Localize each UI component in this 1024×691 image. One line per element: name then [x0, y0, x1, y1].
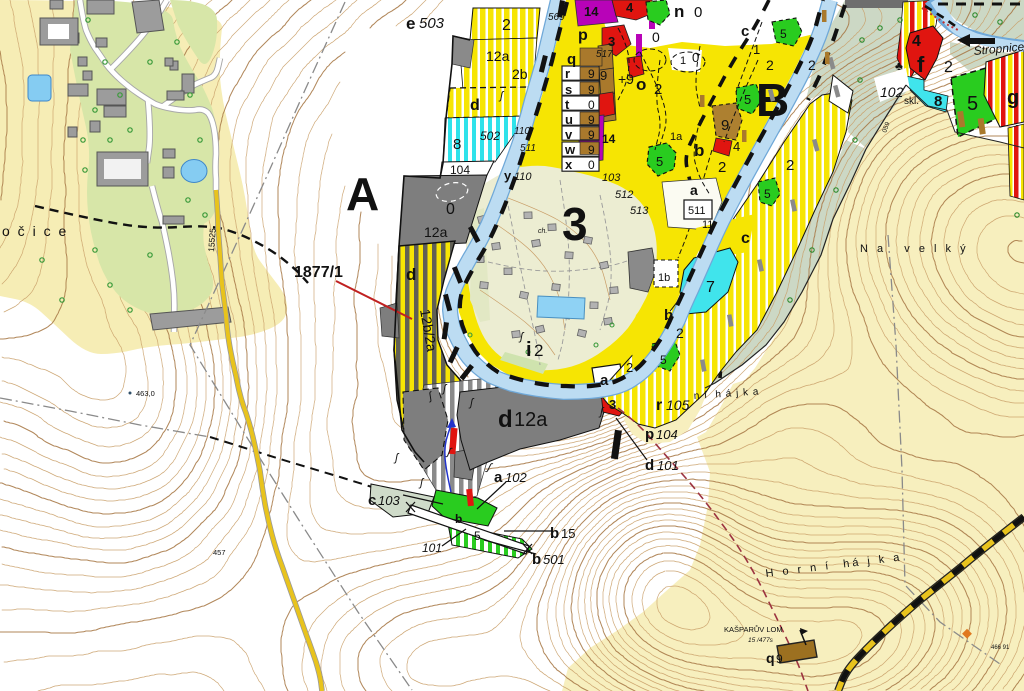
- svg-text:♣: ♣: [895, 59, 903, 73]
- svg-text:2: 2: [766, 57, 774, 73]
- svg-text:103: 103: [602, 172, 621, 184]
- svg-text:3: 3: [562, 198, 588, 250]
- svg-text:ch.: ch.: [538, 228, 547, 235]
- svg-text:x: x: [565, 157, 573, 172]
- svg-text:3: 3: [609, 397, 616, 412]
- svg-text:n: n: [674, 2, 684, 21]
- svg-text:2: 2: [718, 159, 726, 176]
- svg-text:t: t: [565, 97, 570, 112]
- svg-text:14: 14: [602, 132, 616, 146]
- svg-text:b: b: [694, 141, 704, 160]
- svg-text:f: f: [917, 52, 925, 77]
- svg-text:c: c: [741, 23, 749, 40]
- svg-text:502: 502: [480, 129, 500, 143]
- svg-text:102: 102: [880, 84, 904, 100]
- svg-text:b: b: [550, 525, 559, 542]
- svg-text:517: 517: [596, 49, 613, 60]
- svg-text:d: d: [498, 406, 513, 433]
- svg-text:d: d: [470, 97, 480, 114]
- svg-text:a: a: [690, 182, 698, 198]
- svg-text:0: 0: [692, 50, 699, 65]
- svg-text:2: 2: [534, 341, 543, 360]
- svg-text:a: a: [600, 372, 609, 389]
- svg-text:a: a: [494, 469, 503, 486]
- svg-text:3: 3: [608, 34, 615, 49]
- svg-text:skl.: skl.: [904, 96, 919, 107]
- svg-text:15 /477s: 15 /477s: [748, 637, 774, 644]
- svg-text:101: 101: [422, 541, 442, 555]
- svg-text:104: 104: [450, 163, 470, 177]
- svg-text:0: 0: [588, 98, 595, 112]
- svg-text:9: 9: [776, 652, 783, 666]
- svg-text:501: 501: [543, 552, 565, 567]
- svg-text:0: 0: [588, 158, 595, 172]
- svg-text:12a: 12a: [486, 48, 510, 64]
- svg-text:+9: +9: [618, 71, 634, 87]
- svg-text:o: o: [636, 75, 646, 94]
- svg-text:5: 5: [656, 154, 663, 169]
- svg-text:8: 8: [453, 136, 461, 153]
- svg-text:0: 0: [694, 4, 702, 21]
- svg-text:p: p: [645, 426, 654, 443]
- svg-text:b: b: [532, 551, 541, 568]
- svg-text:A: A: [346, 168, 379, 220]
- svg-text:5: 5: [474, 529, 481, 543]
- svg-text:r: r: [565, 66, 570, 81]
- svg-text:b: b: [455, 512, 462, 526]
- svg-text:9: 9: [588, 128, 595, 142]
- svg-text:r: r: [656, 397, 662, 414]
- svg-text:5: 5: [660, 353, 667, 367]
- svg-text:q: q: [567, 51, 576, 68]
- svg-text:463,0: 463,0: [136, 389, 155, 398]
- svg-text:2b: 2b: [512, 66, 528, 82]
- svg-text:2: 2: [786, 157, 794, 174]
- svg-text:15: 15: [561, 526, 575, 541]
- svg-text:105: 105: [666, 397, 690, 413]
- svg-text:4: 4: [912, 33, 921, 50]
- svg-text:14: 14: [584, 4, 599, 19]
- svg-text:12a: 12a: [514, 409, 548, 431]
- svg-text:9: 9: [600, 68, 607, 83]
- svg-text:1: 1: [753, 42, 760, 57]
- svg-text:513: 513: [630, 205, 649, 217]
- svg-text:102: 102: [505, 470, 527, 485]
- svg-text:0: 0: [446, 201, 455, 218]
- svg-text:2: 2: [808, 57, 816, 73]
- svg-text:9: 9: [588, 143, 595, 157]
- svg-text:11: 11: [702, 219, 713, 231]
- svg-text:2: 2: [654, 81, 662, 98]
- svg-text:w: w: [564, 142, 576, 157]
- svg-text:2: 2: [502, 17, 511, 34]
- svg-text:y: y: [504, 168, 512, 183]
- svg-text:5: 5: [764, 187, 771, 201]
- svg-text:5: 5: [780, 27, 787, 41]
- svg-text:d: d: [645, 457, 654, 474]
- svg-text:q: q: [766, 650, 775, 666]
- svg-text:110: 110: [514, 171, 532, 183]
- svg-text:N a v e l k ý: N a v e l k ý: [860, 243, 969, 255]
- svg-text:KAŠPARŮV LOM: KAŠPARŮV LOM: [724, 625, 783, 634]
- svg-text:5: 5: [967, 93, 978, 115]
- svg-text:d: d: [406, 265, 416, 284]
- svg-text:0: 0: [652, 29, 660, 45]
- svg-text:511: 511: [520, 143, 536, 154]
- svg-text:101: 101: [657, 458, 679, 473]
- svg-text:12a: 12a: [424, 224, 448, 240]
- svg-text:9: 9: [588, 113, 595, 127]
- svg-text:1: 1: [680, 55, 686, 67]
- svg-text:4: 4: [733, 139, 740, 154]
- svg-text:v: v: [565, 127, 573, 142]
- svg-text:i: i: [526, 339, 532, 361]
- svg-text:2: 2: [944, 59, 953, 76]
- svg-text:512: 512: [615, 189, 633, 201]
- svg-text:9: 9: [721, 117, 729, 134]
- svg-text:s: s: [565, 82, 572, 97]
- svg-text:g: g: [1007, 87, 1019, 109]
- svg-text:104: 104: [656, 427, 678, 442]
- svg-text:1a: 1a: [670, 131, 683, 143]
- svg-text:7: 7: [706, 279, 715, 296]
- svg-text:457: 457: [213, 548, 226, 557]
- svg-text:9: 9: [588, 83, 595, 97]
- svg-text:503: 503: [419, 15, 445, 32]
- svg-text:5: 5: [744, 92, 751, 107]
- svg-text:c: c: [741, 230, 750, 247]
- svg-text:e: e: [406, 14, 415, 33]
- svg-text:110: 110: [514, 126, 530, 137]
- svg-text:2: 2: [626, 360, 633, 375]
- svg-text:1877/1: 1877/1: [294, 264, 343, 281]
- svg-text:o č i c e: o č i c e: [2, 223, 68, 239]
- svg-text:2: 2: [676, 325, 684, 341]
- svg-text:c: c: [368, 492, 376, 509]
- svg-text:4: 4: [626, 0, 634, 15]
- svg-text:1b: 1b: [658, 272, 670, 284]
- svg-text:p: p: [578, 27, 588, 44]
- svg-text:u: u: [565, 112, 573, 127]
- svg-text:466 91: 466 91: [991, 645, 1010, 651]
- svg-text:9: 9: [588, 67, 595, 81]
- svg-text:511: 511: [688, 205, 706, 217]
- svg-text:103: 103: [378, 493, 400, 508]
- svg-text:15525: 15525: [206, 228, 218, 253]
- svg-text:b: b: [664, 307, 673, 324]
